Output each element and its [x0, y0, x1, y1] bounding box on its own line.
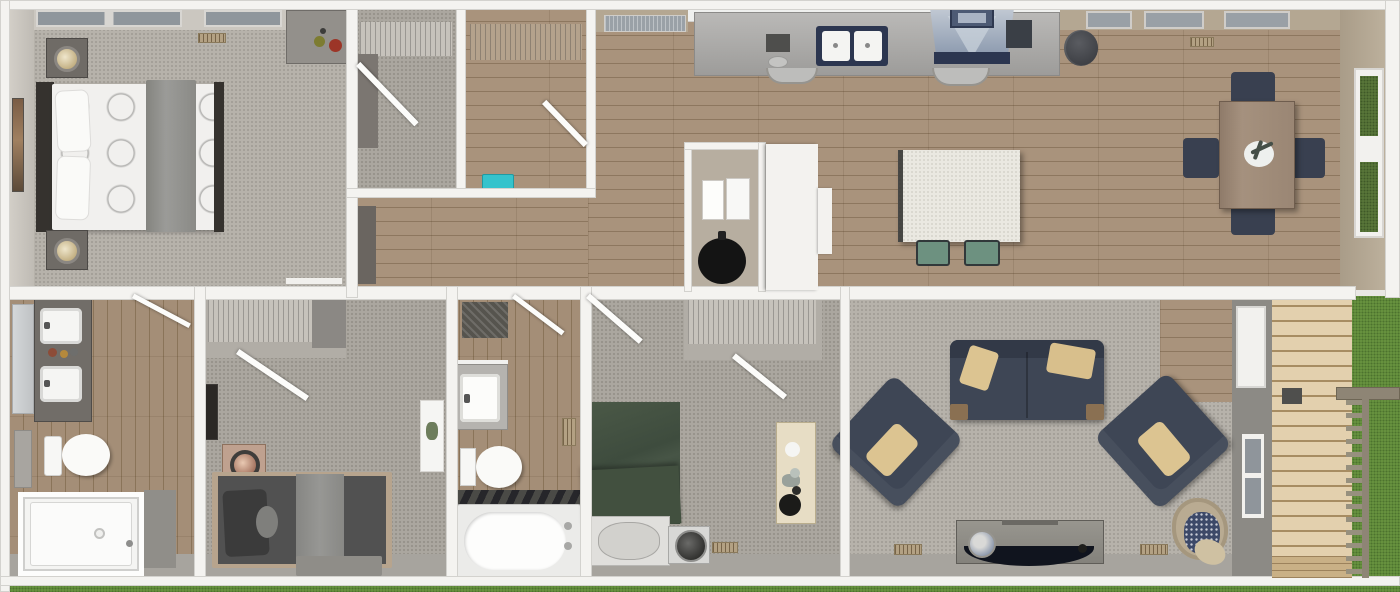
deck-wall-window-pane-b: [1245, 478, 1261, 514]
range-front-band: [934, 52, 1010, 64]
lamp-bed1-north: [54, 46, 80, 72]
dining-chair-west: [1183, 138, 1219, 178]
wall-closet-ab: [456, 8, 466, 192]
window-dining-a: [1086, 11, 1132, 29]
wall-outer-right: [1385, 0, 1400, 298]
vent-living-b: [1140, 544, 1168, 555]
wall-outer-top: [0, 0, 1400, 10]
back-door-glass-a: [1360, 76, 1378, 136]
wall-bed3-living: [840, 286, 850, 578]
dining-chair-north: [1231, 72, 1275, 104]
window-dining-b: [1144, 11, 1204, 29]
bed2-closet-cabinet: [312, 300, 346, 348]
bath2-tub-faucet-a: [564, 522, 572, 530]
utility-books-b: [726, 178, 750, 220]
dresser-decor-olive: [314, 36, 325, 47]
art-bed1: [12, 98, 24, 192]
wall-outer-left: [0, 0, 10, 592]
island-stool-b: [964, 240, 1000, 266]
bed2-rug: [296, 556, 382, 576]
floor-hallway: [346, 194, 596, 290]
window-dining-c: [1224, 11, 1290, 29]
desk-object-plate: [785, 442, 800, 457]
dining-plant-pot: [1066, 31, 1098, 65]
counter-metal-bowl: [768, 56, 788, 68]
art-bed2: [204, 384, 218, 440]
bed2-panel-plant: [426, 422, 438, 440]
deck-wall-window-pane-a: [1245, 439, 1261, 473]
bath1-shower-handle: [126, 540, 133, 547]
floorplan-canvas: [0, 0, 1400, 592]
bath1-sink-b-faucet: [44, 380, 50, 387]
bath2-sink-faucet: [464, 394, 470, 403]
vent-living-a: [894, 544, 922, 555]
wall-bath2-bed3: [580, 286, 592, 578]
utility-tank: [698, 238, 746, 284]
bath1-toilet-bowl: [62, 434, 110, 476]
wall-bed2-bath2: [446, 286, 458, 578]
wall-closets-bottom: [346, 188, 596, 198]
bath2-tub-faucet-b: [564, 542, 572, 550]
counter-appliance-dark: [1006, 20, 1032, 48]
bed3-closet-shelf: [688, 300, 816, 344]
faucet-dot-left: [833, 43, 838, 48]
wall-outer-bottom: [0, 576, 1400, 586]
closet-a-shelf: [360, 22, 452, 56]
window-hall: [604, 15, 686, 32]
bath1-shower-drain: [94, 528, 105, 539]
deck-rail-outer: [1362, 398, 1369, 578]
bath1-sink-a-faucet: [44, 322, 50, 329]
bath1-mirror-strip: [12, 304, 34, 414]
faucet-dot-right: [865, 43, 870, 48]
dining-chair-south: [1231, 205, 1275, 235]
bath1-partition: [144, 490, 176, 568]
vent-dining: [1190, 37, 1214, 47]
hallway-cabinet: [358, 206, 376, 284]
bed2-throw-blanket: [296, 474, 344, 566]
bath1-toilet-tank: [44, 436, 62, 476]
utility-books-a: [702, 180, 724, 220]
bath2-tub-basin: [464, 512, 566, 570]
counter-stool-arc-b: [932, 68, 990, 86]
deck-door: [1236, 306, 1266, 388]
bath1-accessory-c: [70, 348, 78, 356]
bed3-bench-pillow: [598, 522, 660, 560]
desk-object-small: [792, 486, 801, 495]
vent-bed1: [198, 33, 226, 43]
sofa-leg-left: [950, 404, 968, 420]
console-knob-decor: [1078, 544, 1087, 553]
dresser-decor-red: [329, 39, 342, 52]
wall-bath1-bed2: [194, 286, 206, 578]
bed1-pillow-a: [54, 89, 91, 153]
desk-object-black: [779, 494, 801, 516]
bath1-accessory-b: [60, 350, 68, 358]
console-globe-decor: [968, 530, 996, 558]
range-hood-vent-inner: [958, 13, 986, 23]
bed1-footboard: [214, 82, 224, 232]
bed3-speaker: [675, 530, 707, 562]
bath1-wall-niche: [14, 430, 32, 488]
kitchen-island: [898, 150, 1020, 242]
desk-object-light: [790, 468, 800, 478]
island-stool-a: [916, 240, 950, 266]
bath2-door-mat: [462, 302, 508, 338]
back-door-glass-b: [1360, 162, 1378, 232]
bath2-toilet-tank: [460, 448, 476, 486]
threshold-bed1: [286, 278, 342, 284]
counter-stool-arc-a: [766, 68, 818, 84]
tv-console-lip: [1002, 520, 1058, 525]
counter-coffee-maker: [766, 34, 790, 52]
sofa-leg-right: [1086, 404, 1104, 420]
window-bed1-a: [36, 10, 182, 27]
vent-bed3: [712, 542, 738, 553]
lamp-bed1-south: [54, 238, 80, 264]
wall-utility-left: [684, 142, 692, 292]
deck-edge-board: [1272, 556, 1352, 578]
dining-chair-east: [1291, 138, 1325, 178]
bath2-toilet-bowl: [476, 446, 522, 488]
vent-bath2: [562, 418, 576, 446]
utility-door-open: [766, 144, 818, 290]
closet-b-shelf: [470, 24, 582, 60]
wall-utility-top: [684, 142, 766, 150]
utility-tank-stem: [718, 231, 726, 240]
bath1-shower-pan: [30, 502, 132, 566]
bed2-round-pillow: [256, 506, 278, 538]
bed1-pillow-b: [55, 155, 91, 220]
bath1-accessory-a: [48, 348, 57, 357]
deck-door-mat: [1282, 388, 1302, 404]
floor-deck: [1272, 292, 1352, 578]
wall-utility-right: [758, 142, 766, 292]
wall-closet-b-right: [586, 8, 596, 192]
utility-door-edge: [818, 188, 832, 254]
dresser-decor-small: [320, 28, 326, 34]
window-bed1-b: [204, 10, 282, 27]
bed1-throw-blanket: [146, 80, 196, 232]
sofa-seam: [1026, 352, 1028, 418]
wall-bed1-right: [346, 0, 358, 298]
